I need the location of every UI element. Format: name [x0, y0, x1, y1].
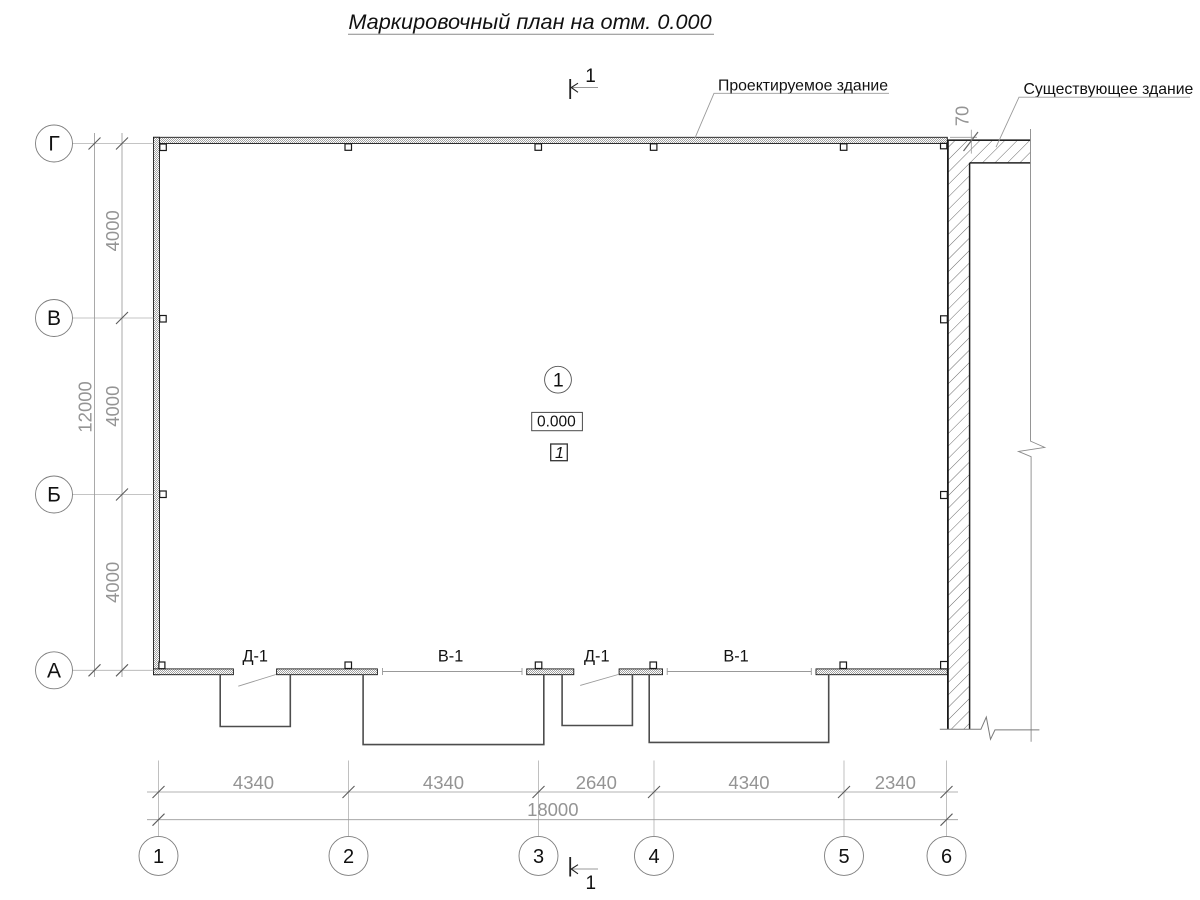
svg-text:А: А — [47, 660, 61, 683]
svg-text:В-1: В-1 — [438, 648, 463, 666]
svg-text:Д-1: Д-1 — [584, 648, 610, 666]
svg-text:Проектируемое здание: Проектируемое здание — [718, 77, 888, 94]
svg-text:Г: Г — [48, 133, 59, 156]
svg-text:4340: 4340 — [233, 772, 274, 793]
svg-text:4340: 4340 — [423, 772, 464, 793]
svg-text:18000: 18000 — [527, 799, 578, 820]
svg-text:1: 1 — [553, 370, 564, 392]
svg-text:2640: 2640 — [576, 772, 617, 793]
svg-text:В: В — [47, 307, 61, 330]
svg-text:1: 1 — [585, 66, 596, 87]
svg-text:0.000: 0.000 — [537, 413, 576, 430]
svg-text:4000: 4000 — [102, 562, 123, 603]
svg-text:6: 6 — [941, 846, 952, 868]
svg-text:1: 1 — [153, 846, 164, 868]
svg-text:4000: 4000 — [102, 210, 123, 251]
svg-text:2340: 2340 — [875, 772, 916, 793]
svg-text:12000: 12000 — [75, 381, 96, 432]
svg-text:1: 1 — [555, 445, 564, 462]
svg-text:В-1: В-1 — [723, 648, 748, 666]
svg-text:1: 1 — [586, 873, 597, 894]
svg-text:5: 5 — [838, 846, 849, 868]
svg-text:Существующее здание: Существующее здание — [1024, 81, 1194, 98]
svg-text:Маркировочный план на отм. 0.0: Маркировочный план на отм. 0.000 — [348, 9, 711, 34]
svg-text:4000: 4000 — [102, 386, 123, 427]
svg-text:3: 3 — [533, 846, 544, 868]
svg-text:4: 4 — [648, 846, 659, 868]
svg-text:70: 70 — [952, 106, 973, 127]
svg-text:Д-1: Д-1 — [242, 648, 268, 666]
svg-text:2: 2 — [343, 846, 354, 868]
svg-text:4340: 4340 — [728, 772, 769, 793]
svg-text:Б: Б — [47, 484, 61, 507]
